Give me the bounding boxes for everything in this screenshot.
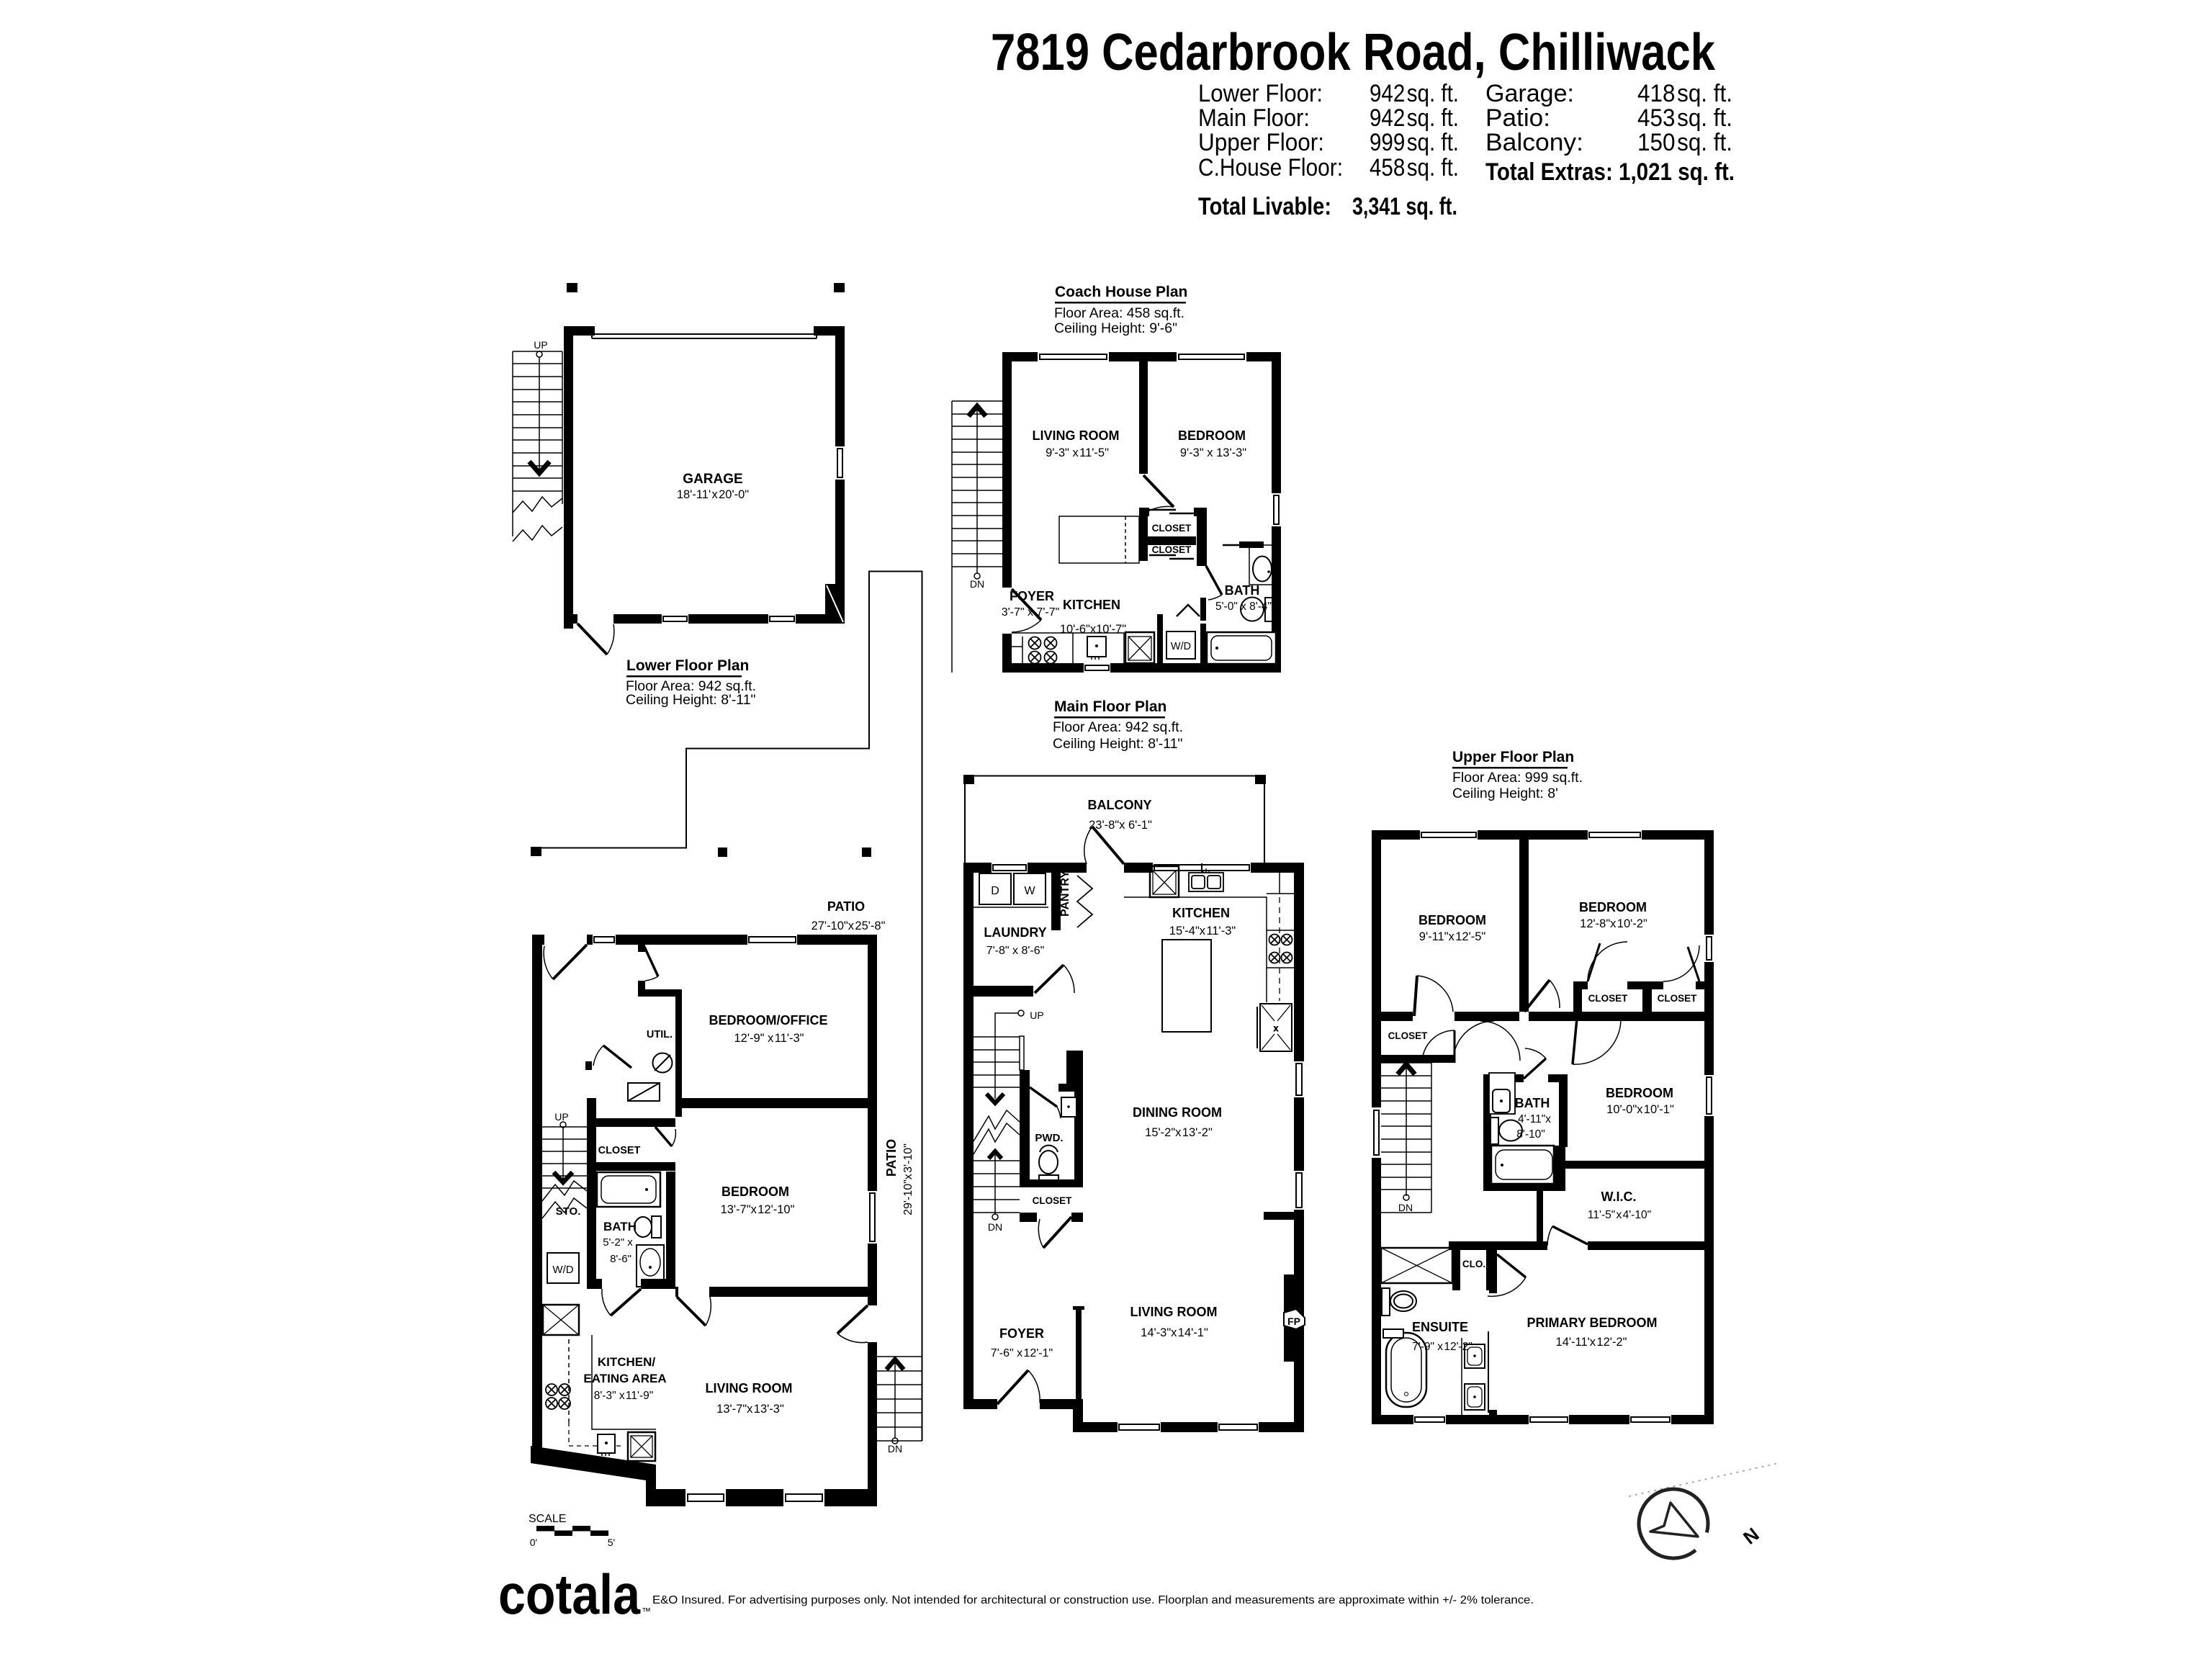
svg-text:LIVING ROOM: LIVING ROOM: [1130, 1305, 1218, 1319]
svg-text:Lower Floor:: Lower Floor:: [1198, 80, 1323, 107]
svg-text:DINING ROOM: DINING ROOM: [1133, 1105, 1222, 1120]
svg-text:458 sq. ft.: 458 sq. ft.: [1370, 154, 1459, 181]
svg-text:12'-8"x 10'-2": 12'-8"x 10'-2": [1580, 917, 1647, 930]
svg-text:Upper Floor:: Upper Floor:: [1198, 129, 1324, 156]
svg-text:GARAGE: GARAGE: [683, 472, 742, 487]
svg-text:DN: DN: [888, 1443, 902, 1455]
svg-text:942 sq. ft.: 942 sq. ft.: [1370, 80, 1459, 107]
svg-text:CLOSET: CLOSET: [1152, 523, 1192, 534]
svg-text:5': 5': [608, 1537, 615, 1548]
svg-text:BEDROOM: BEDROOM: [721, 1184, 789, 1199]
svg-text:UTIL.: UTIL.: [647, 1029, 673, 1040]
svg-text:DN: DN: [970, 578, 984, 590]
svg-text:12'-9" x 11'-3": 12'-9" x 11'-3": [734, 1032, 804, 1045]
svg-text:7'-9" x 12'-2": 7'-9" x 12'-2": [1412, 1341, 1473, 1353]
svg-text:13'-7"x 12'-10": 13'-7"x 12'-10": [721, 1203, 795, 1216]
svg-text:PATIO: PATIO: [884, 1139, 899, 1177]
svg-text:8'-10": 8'-10": [1516, 1128, 1545, 1141]
svg-text:23'-8"x 6'-1": 23'-8"x 6'-1": [1089, 819, 1152, 832]
svg-text:Floor Area: 942 sq.ft.: Floor Area: 942 sq.ft.: [1053, 719, 1183, 735]
svg-text:ENSUITE: ENSUITE: [1412, 1320, 1468, 1334]
svg-text:7'-6" x 12'-1": 7'-6" x 12'-1": [991, 1347, 1053, 1359]
svg-text:KITCHEN/: KITCHEN/: [598, 1355, 656, 1369]
svg-text:™: ™: [642, 1606, 651, 1617]
svg-text:9'-3" x 11'-5": 9'-3" x 11'-5": [1046, 446, 1109, 459]
svg-text:Lower Floor Plan: Lower Floor Plan: [626, 657, 749, 674]
svg-text:BATH: BATH: [603, 1220, 637, 1233]
svg-text:UP: UP: [534, 339, 547, 351]
svg-text:KITCHEN: KITCHEN: [1172, 906, 1230, 920]
svg-text:LAUNDRY: LAUNDRY: [984, 925, 1046, 940]
svg-text:18'-11' x 20'-0": 18'-11' x 20'-0": [677, 488, 749, 501]
svg-text:9'-11"x 12'-5": 9'-11"x 12'-5": [1419, 930, 1486, 943]
svg-text:CLOSET: CLOSET: [1033, 1195, 1073, 1206]
svg-text:Balcony:: Balcony:: [1485, 129, 1583, 156]
svg-text:BEDROOM: BEDROOM: [1419, 913, 1486, 927]
svg-text:29'-10"x 3'-10": 29'-10"x 3'-10": [902, 1143, 914, 1215]
svg-text:7'-8" x 8'-6": 7'-8" x 8'-6": [986, 945, 1045, 957]
svg-text:5'-2" x: 5'-2" x: [603, 1236, 633, 1249]
svg-text:Ceiling Height: 8'-11": Ceiling Height: 8'-11": [1053, 736, 1183, 752]
svg-text:11'-5" x 4'-10": 11'-5" x 4'-10": [1588, 1209, 1651, 1221]
svg-text:453 sq. ft.: 453 sq. ft.: [1637, 104, 1732, 132]
svg-text:W: W: [1024, 885, 1035, 897]
svg-text:BALCONY: BALCONY: [1088, 798, 1152, 812]
svg-text:CLOSET: CLOSET: [1388, 1030, 1429, 1041]
svg-text:3'-7" x 7'-7": 3'-7" x 7'-7": [1002, 606, 1060, 619]
svg-text:D: D: [991, 885, 999, 897]
svg-text:CLO.: CLO.: [1462, 1259, 1485, 1269]
svg-text:Total Extras: 1,021 sq. ft.: Total Extras: 1,021 sq. ft.: [1485, 158, 1735, 186]
svg-text:E&O Insured. For advertising p: E&O Insured. For advertising purposes on…: [652, 1594, 1534, 1606]
svg-text:8'-6": 8'-6": [610, 1253, 631, 1265]
svg-text:13'-7"x 13'-3": 13'-7"x 13'-3": [716, 1403, 784, 1416]
svg-text:Floor Area: 999 sq.ft.: Floor Area: 999 sq.ft.: [1452, 770, 1583, 786]
svg-text:Main Floor Plan: Main Floor Plan: [1054, 698, 1166, 715]
svg-text:418 sq. ft.: 418 sq. ft.: [1637, 80, 1732, 107]
svg-text:Garage:: Garage:: [1485, 80, 1574, 107]
svg-text:SCALE: SCALE: [529, 1513, 566, 1525]
svg-text:PRIMARY BEDROOM: PRIMARY BEDROOM: [1527, 1316, 1657, 1330]
svg-text:7819 Cedarbrook Road, Chilliwa: 7819 Cedarbrook Road, Chilliwack: [991, 24, 1716, 81]
svg-text:999 sq. ft.: 999 sq. ft.: [1370, 129, 1459, 156]
svg-text:Ceiling Height: 8': Ceiling Height: 8': [1452, 786, 1558, 801]
svg-text:PANTRY: PANTRY: [1059, 871, 1071, 917]
svg-text:CLOSET: CLOSET: [1588, 993, 1629, 1004]
svg-text:BATH: BATH: [1225, 583, 1260, 598]
svg-text:15'-2"x 13'-2": 15'-2"x 13'-2": [1145, 1126, 1213, 1139]
svg-text:8'-3" x 11'-9": 8'-3" x 11'-9": [594, 1390, 654, 1402]
svg-text:BEDROOM: BEDROOM: [1606, 1086, 1673, 1100]
svg-text:BEDROOM: BEDROOM: [1178, 428, 1246, 443]
svg-text:0': 0': [530, 1537, 537, 1548]
svg-text:W/D: W/D: [1171, 641, 1191, 652]
svg-text:Ceiling Height: 8'-11": Ceiling Height: 8'-11": [626, 692, 756, 708]
svg-text:DN: DN: [1398, 1202, 1413, 1213]
svg-text:PWD.: PWD.: [1035, 1132, 1063, 1144]
svg-text:EATING AREA: EATING AREA: [583, 1372, 666, 1385]
svg-text:15'-4"x 11'-3": 15'-4"x 11'-3": [1169, 925, 1236, 938]
svg-text:LIVING ROOM: LIVING ROOM: [706, 1381, 793, 1395]
svg-text:10'-6"x10'-7": 10'-6"x10'-7": [1060, 623, 1126, 636]
svg-text:Main Floor:: Main Floor:: [1198, 104, 1310, 132]
svg-text:UP: UP: [1030, 1010, 1043, 1021]
svg-text:W/D: W/D: [552, 1264, 573, 1276]
svg-text:Patio:: Patio:: [1485, 104, 1550, 132]
svg-text:4'-11"x: 4'-11"x: [1518, 1113, 1551, 1125]
svg-text:9'-3" x 13'-3": 9'-3" x 13'-3": [1180, 446, 1246, 459]
svg-text:942 sq. ft.: 942 sq. ft.: [1370, 104, 1459, 132]
svg-text:14'-11'x 12'-2": 14'-11'x 12'-2": [1556, 1336, 1627, 1349]
svg-text:150 sq. ft.: 150 sq. ft.: [1637, 129, 1732, 156]
svg-text:cotala: cotala: [498, 1563, 641, 1626]
svg-text:27'-10"x 25'-8": 27'-10"x 25'-8": [811, 920, 886, 932]
svg-text:BATH: BATH: [1515, 1096, 1550, 1110]
svg-text:x: x: [1274, 1023, 1278, 1033]
svg-text:CLOSET: CLOSET: [1152, 544, 1192, 555]
svg-text:FP: FP: [1287, 1316, 1300, 1327]
svg-text:10'-0"x 10'-1": 10'-0"x 10'-1": [1606, 1103, 1674, 1116]
svg-text:BEDROOM: BEDROOM: [1579, 900, 1647, 914]
svg-text:DN: DN: [988, 1221, 1002, 1233]
svg-text:W.I.C.: W.I.C.: [1601, 1190, 1637, 1204]
svg-text:BEDROOM/OFFICE: BEDROOM/OFFICE: [709, 1013, 828, 1028]
svg-text:KITCHEN: KITCHEN: [1063, 598, 1120, 612]
svg-text:LIVING ROOM: LIVING ROOM: [1033, 428, 1120, 443]
svg-text:Upper Floor Plan: Upper Floor Plan: [1452, 749, 1574, 765]
svg-text:3,341 sq. ft.: 3,341 sq. ft.: [1352, 193, 1457, 220]
svg-text:Total Livable:: Total Livable:: [1198, 193, 1331, 220]
svg-text:C.House Floor:: C.House Floor:: [1198, 154, 1343, 181]
svg-text:Coach House Plan: Coach House Plan: [1055, 284, 1187, 300]
svg-text:PATIO: PATIO: [827, 899, 865, 914]
svg-text:FOYER: FOYER: [1010, 589, 1054, 603]
svg-text:14'-3"x 14'-1": 14'-3"x 14'-1": [1141, 1326, 1208, 1339]
svg-text:5'-0" x 8'-4": 5'-0" x 8'-4": [1215, 601, 1272, 613]
svg-text:Ceiling Height: 9'-6": Ceiling Height: 9'-6": [1054, 320, 1177, 336]
svg-text:Floor Area: 458 sq.ft.: Floor Area: 458 sq.ft.: [1054, 305, 1184, 321]
svg-text:CLOSET: CLOSET: [1658, 993, 1698, 1004]
svg-text:FOYER: FOYER: [999, 1326, 1044, 1341]
svg-text:UP: UP: [554, 1111, 568, 1123]
svg-text:CLOSET: CLOSET: [598, 1145, 641, 1156]
